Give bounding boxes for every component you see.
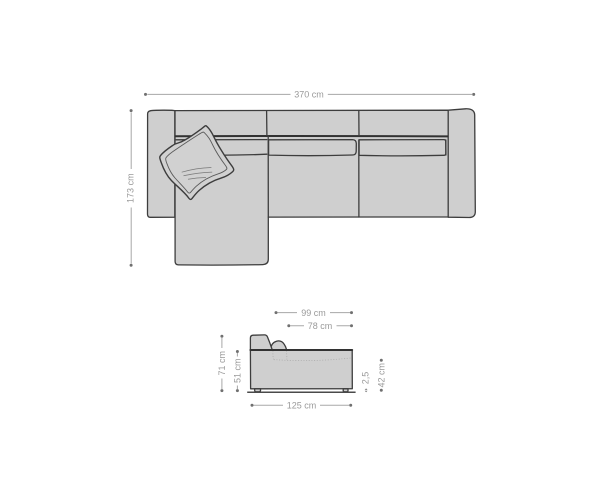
svg-text:173 cm: 173 cm <box>126 173 136 203</box>
svg-text:2,5: 2,5 <box>361 372 371 385</box>
svg-text:370 cm: 370 cm <box>294 90 324 100</box>
svg-text:51 cm: 51 cm <box>233 359 243 384</box>
svg-text:71 cm: 71 cm <box>217 351 227 376</box>
svg-text:42 cm: 42 cm <box>376 363 386 388</box>
svg-text:78 cm: 78 cm <box>308 321 333 331</box>
svg-text:99 cm: 99 cm <box>301 308 326 318</box>
svg-text:125 cm: 125 cm <box>287 401 317 411</box>
